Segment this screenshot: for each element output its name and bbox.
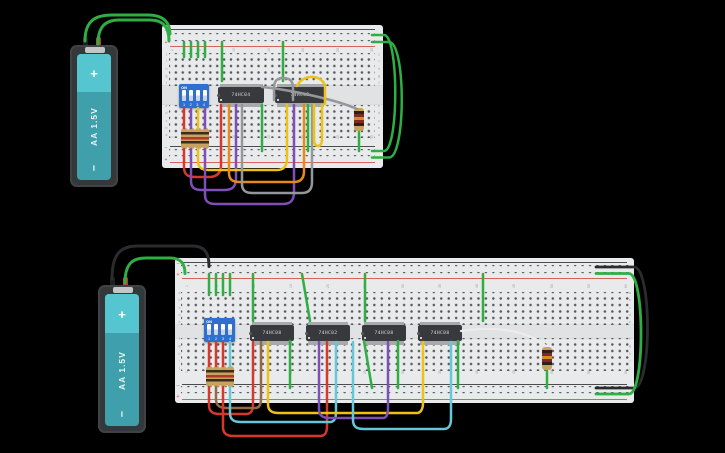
wire-over-ic2[interactable] [297,77,325,104]
wire-vcc[interactable] [302,274,310,321]
wire-rail-jumper[interactable] [372,42,402,158]
wire-rail-jumper[interactable] [596,274,641,395]
wire-rail-jumper[interactable] [372,35,395,151]
wires-overlay [0,0,725,453]
wire-battery-positive[interactable] [98,20,169,44]
wire-battery-positive[interactable] [125,258,185,283]
wire-gnd[interactable] [364,341,372,388]
wire-ic2-ic4[interactable] [353,342,451,429]
wire-feedback-u[interactable] [314,105,322,146]
circuit-canvas: 151015202530 151015202530 jihgf edcba ji… [0,0,725,453]
wire-ic-resistor[interactable] [262,87,357,109]
wire-ic4-resistor[interactable] [461,329,546,346]
wire-switch1-ic1[interactable] [184,105,221,177]
